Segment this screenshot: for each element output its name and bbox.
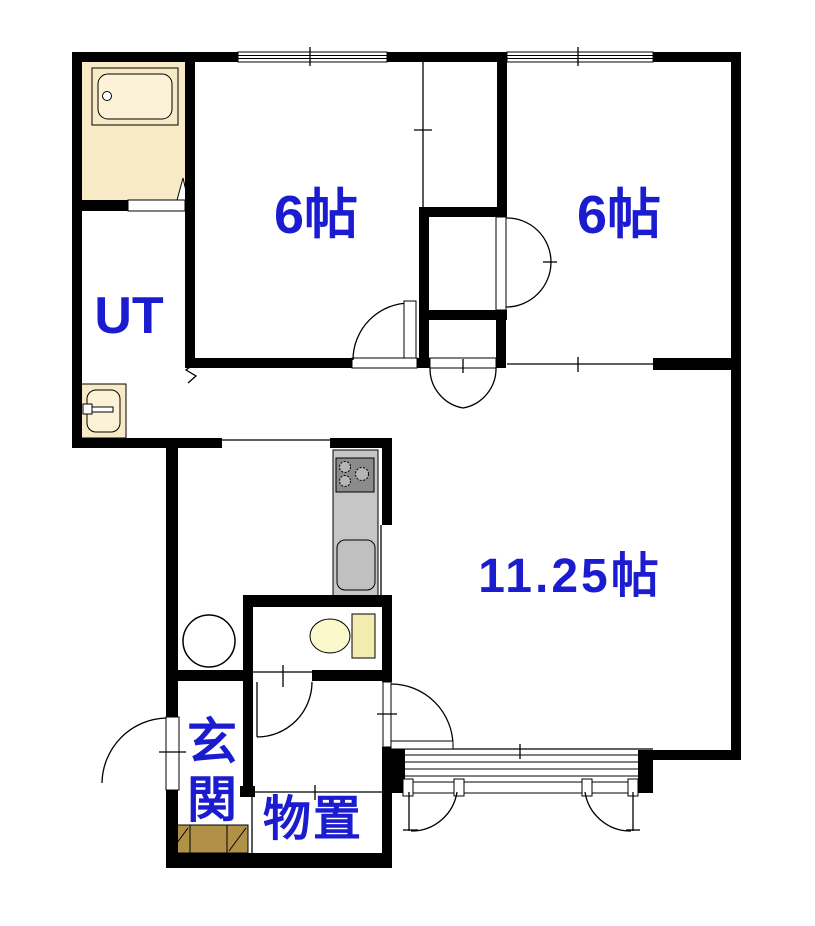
wall-closet-top — [419, 207, 507, 217]
door-frames — [128, 200, 506, 790]
shutter-left-arc — [411, 792, 457, 831]
bedroom-left-door-frame — [352, 358, 417, 368]
wall-top-mid — [387, 52, 507, 62]
grid-ticks — [159, 47, 578, 800]
shutter-right-arc — [585, 792, 631, 831]
entrance-door-leaf — [166, 717, 179, 790]
bathtub-drain-icon — [103, 92, 112, 101]
bedroom-left-door-leaf — [404, 301, 416, 358]
window-bay — [403, 755, 638, 796]
wall-storage-right — [382, 793, 392, 855]
wall-top-left — [72, 52, 238, 62]
living-door-arc — [391, 684, 453, 746]
wall-hall-top-left — [166, 670, 252, 681]
kitchen-fixtures — [333, 450, 378, 597]
entrance-label: 玄関 — [183, 708, 233, 838]
wall-ldk-bottom — [653, 750, 741, 760]
utility-label: UT — [79, 290, 179, 342]
closet-upper-door-frame — [496, 217, 506, 310]
closet-lower-door-arc — [430, 368, 463, 408]
wall-hall-divider — [243, 595, 253, 793]
wall-hall-top-right — [312, 670, 392, 681]
wall-closet-left — [419, 207, 429, 368]
bathroom-door-frame — [128, 200, 185, 211]
burner-icon — [340, 476, 351, 487]
bedroom-right-label: 6帖 — [529, 188, 709, 242]
wall-bottom — [166, 853, 392, 868]
wall-right — [731, 52, 741, 760]
storage-label: 物置 — [248, 796, 378, 844]
burner-icon — [340, 462, 351, 473]
floor-plan-drawing — [0, 0, 815, 926]
living-door-leaf — [391, 741, 453, 749]
wall-toilet-top — [243, 595, 392, 607]
wall-bedroom-right-bottom — [653, 358, 731, 370]
wall-top-right — [653, 52, 741, 62]
wall-bay-right-post — [638, 750, 653, 793]
closet-lower-door-arc — [463, 368, 496, 408]
wall-bath-divider — [185, 61, 195, 368]
wall-bay-left-post — [382, 747, 405, 793]
wall-room-partition — [497, 52, 507, 217]
bay-rail — [405, 782, 638, 793]
wall-bedroom-left-bottom — [185, 358, 352, 368]
hall-door-arc — [257, 682, 312, 737]
washbasin-faucet-icon — [83, 404, 92, 414]
bay-post — [454, 779, 464, 796]
toilet-fixture — [310, 614, 375, 658]
wall-kitchen-right — [382, 438, 392, 525]
bedroom-left-label: 6帖 — [226, 188, 406, 242]
burner-icon — [356, 468, 369, 481]
thin-lines — [222, 61, 653, 855]
window-bedroom-left — [238, 52, 387, 62]
entrance-door-arc — [102, 718, 166, 783]
wall-closet-mid — [419, 310, 507, 320]
window-bedroom-right — [507, 52, 653, 62]
living-room-label: 11.25帖 — [440, 553, 700, 601]
bedroom-left-door-arc — [353, 303, 410, 360]
washbasin-handle-icon — [92, 407, 113, 412]
kitchen-sink — [337, 540, 375, 590]
closet-upper-door-arc — [506, 262, 551, 307]
wall-ut-bottom — [72, 438, 222, 448]
washing-machine-icon — [183, 615, 235, 667]
toilet-bowl-icon — [310, 619, 350, 653]
toilet-tank-icon — [352, 614, 375, 658]
wall-bathroom-bottom — [72, 200, 128, 211]
bay-post — [582, 779, 592, 796]
wall-closet-right-lower — [496, 320, 506, 368]
wall-left-upper — [72, 52, 82, 448]
wall-left-lower-a — [166, 448, 178, 717]
floor-plan: 6帖 6帖 UT 11.25帖 玄関 物置 — [0, 0, 815, 926]
bay-post — [403, 779, 413, 796]
